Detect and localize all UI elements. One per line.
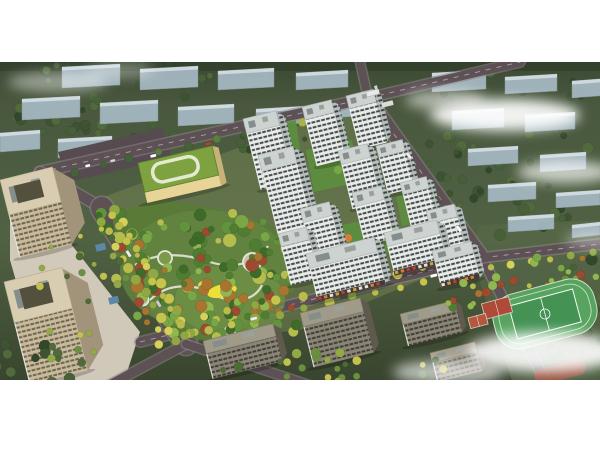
bg-tree [108, 234, 115, 241]
bg-tree [593, 274, 600, 281]
bg-tree [292, 349, 302, 359]
bg-tree [284, 373, 291, 380]
park-tree [195, 300, 207, 312]
bg-tree [110, 253, 117, 260]
bg-tree [494, 229, 506, 241]
park-tree [288, 304, 295, 311]
street-tree [213, 135, 221, 143]
bg-tree [80, 107, 86, 113]
bg-tree [49, 245, 54, 250]
park-tree [230, 224, 239, 233]
street-tree [155, 148, 162, 155]
street-tree [567, 252, 575, 260]
park-tree [291, 320, 301, 330]
bg-tree [79, 269, 86, 276]
bg-tree [470, 283, 476, 289]
street-tree [131, 275, 141, 285]
street-tree [124, 154, 133, 163]
bg-tree [467, 303, 474, 310]
bg-tree [444, 175, 451, 182]
bg-tree [100, 273, 107, 280]
bg-tree [181, 93, 189, 101]
bg-tree [39, 128, 46, 135]
bg-tree [471, 143, 476, 148]
bg-tree [86, 330, 93, 337]
street-tree [150, 302, 157, 309]
street-tree [133, 245, 141, 253]
bg-tree [579, 256, 585, 262]
park-tree [197, 254, 206, 263]
bg-tree [577, 271, 585, 279]
bg-tree [442, 131, 452, 141]
park-tree [157, 219, 164, 226]
street-tree [135, 253, 140, 258]
render-scene [0, 62, 600, 380]
bg-tree [77, 332, 83, 338]
street-tree [180, 331, 189, 340]
bg-tree [353, 373, 360, 380]
street-tree [299, 292, 308, 301]
street-tree [164, 327, 173, 336]
render-page [0, 0, 600, 450]
street-tree [100, 161, 107, 168]
street-tree [156, 313, 167, 324]
street-tree [397, 284, 404, 291]
park-tree [228, 209, 237, 218]
street-tree [228, 321, 236, 329]
bg-tree [198, 74, 206, 82]
park-plaza-circle [158, 251, 172, 265]
bg-tree [122, 274, 129, 281]
bg-tree [99, 226, 105, 232]
bg-tree [78, 234, 83, 239]
street-tree [507, 261, 515, 269]
bg-tree [492, 273, 501, 282]
bg-tree [302, 137, 307, 142]
street-tree [200, 313, 208, 321]
bg-tree [220, 367, 226, 373]
street-tree [97, 217, 106, 226]
bg-tree [31, 354, 39, 362]
park-tree [223, 234, 237, 248]
bg-tree [509, 276, 518, 285]
bg-tree [324, 357, 331, 364]
bg-tree [352, 356, 361, 365]
street-tree [547, 256, 553, 262]
park-tree [161, 267, 167, 273]
bg-tree [14, 112, 23, 121]
street-tree [111, 243, 119, 251]
street-tree [184, 142, 193, 151]
bg-tree [311, 348, 320, 357]
bg-tree [459, 279, 468, 288]
park-tree [273, 274, 281, 282]
park-tree [261, 232, 270, 241]
bg-tree [3, 349, 12, 358]
bg-tree [39, 265, 45, 271]
bg-tree [46, 328, 53, 335]
street-tree [123, 237, 131, 245]
street-tree [70, 168, 79, 177]
park-tree [261, 311, 269, 319]
street-tree [204, 326, 213, 335]
bg-tree [76, 253, 84, 261]
park-tree [215, 238, 221, 244]
bg-tree [91, 349, 97, 355]
bg-tree [92, 262, 97, 267]
street-tree [276, 311, 285, 320]
bg-tree [334, 366, 340, 372]
park-tree [194, 209, 206, 221]
bg-tree [78, 358, 86, 366]
bg-tree [207, 73, 213, 79]
park-tree [179, 221, 190, 232]
park-tree [279, 286, 289, 296]
street-tree [420, 278, 428, 286]
park-tree [142, 233, 152, 243]
bg-tree [477, 189, 483, 195]
park-tree [179, 265, 188, 274]
bg-tree [325, 374, 332, 380]
park-tree [133, 311, 142, 320]
bg-tree [454, 150, 459, 155]
street-tree [177, 320, 185, 328]
street-tree [300, 304, 308, 312]
bg-tree [560, 132, 567, 139]
street-tree [488, 264, 495, 271]
bg-tree [64, 274, 70, 280]
park-tree [267, 272, 274, 279]
street-tree [115, 222, 123, 230]
bg-tree [1, 339, 11, 349]
aerial-render [0, 62, 600, 380]
bg-tree [56, 357, 61, 362]
bg-tree [546, 183, 552, 189]
street-tree [167, 306, 173, 312]
bg-tree [533, 253, 542, 262]
park-tree [211, 319, 219, 327]
bg-tree [283, 358, 291, 366]
bg-tree [458, 176, 467, 185]
park-tree [259, 298, 265, 304]
bg-tree [298, 364, 305, 371]
park-tree [266, 249, 273, 256]
street-tree [108, 211, 116, 219]
bg-tree [85, 299, 91, 305]
park-tree [202, 279, 213, 290]
park-tree [220, 280, 232, 292]
street-tree [160, 293, 166, 299]
park-tree [239, 294, 249, 304]
park-tree [204, 266, 211, 273]
bg-tree [527, 283, 532, 288]
bg-tree [49, 343, 56, 350]
bg-tree [36, 282, 44, 290]
street-tree [148, 277, 156, 285]
bg-tree [234, 362, 244, 372]
street-tree [142, 288, 151, 297]
park-tree [226, 272, 233, 279]
bg-tree [80, 120, 91, 131]
street-tree [105, 227, 113, 235]
cloud [85, 62, 155, 78]
bg-tree [47, 354, 55, 362]
bg-tree [558, 265, 565, 272]
park-tree [226, 259, 238, 271]
bg-tree [566, 269, 572, 275]
park-tree [195, 268, 201, 274]
street-tree [223, 307, 231, 315]
bg-tree [486, 167, 492, 173]
park-tree [134, 297, 144, 307]
park-tree [249, 239, 261, 251]
street-tree [156, 278, 167, 289]
bg-tree [488, 281, 497, 290]
bg-tree [342, 361, 348, 367]
bg-tree [445, 300, 451, 306]
park-tree [181, 281, 187, 287]
park-tree [189, 238, 198, 247]
bg-tree [277, 359, 283, 365]
bg-tree [475, 290, 482, 297]
bg-tree [116, 257, 124, 265]
bg-tree [335, 348, 344, 357]
bg-tree [74, 346, 81, 353]
street-tree [251, 301, 259, 309]
bg-tree [114, 280, 122, 288]
bg-tree [497, 281, 504, 288]
bg-tree [237, 139, 246, 148]
park-tree [142, 308, 149, 315]
park-tree [208, 226, 214, 232]
bg-tree [6, 367, 16, 377]
courtyard-planting [334, 166, 342, 174]
street-tree [171, 336, 180, 345]
street-tree [155, 340, 164, 349]
street-tree [123, 263, 133, 273]
street-tree [143, 263, 151, 271]
bg-tree [53, 62, 60, 69]
cloud [405, 90, 485, 110]
park-tree [262, 285, 271, 294]
bg-tree [95, 130, 102, 137]
street-tree [271, 295, 281, 305]
park-tree [144, 319, 150, 325]
park-tree [254, 253, 262, 261]
bg-tree [518, 204, 529, 215]
bg-tree [425, 140, 433, 148]
street-tree [155, 326, 162, 333]
park-tree [260, 218, 267, 225]
street-tree [589, 248, 597, 256]
bg-tree [67, 126, 76, 135]
bg-tree [470, 194, 478, 202]
